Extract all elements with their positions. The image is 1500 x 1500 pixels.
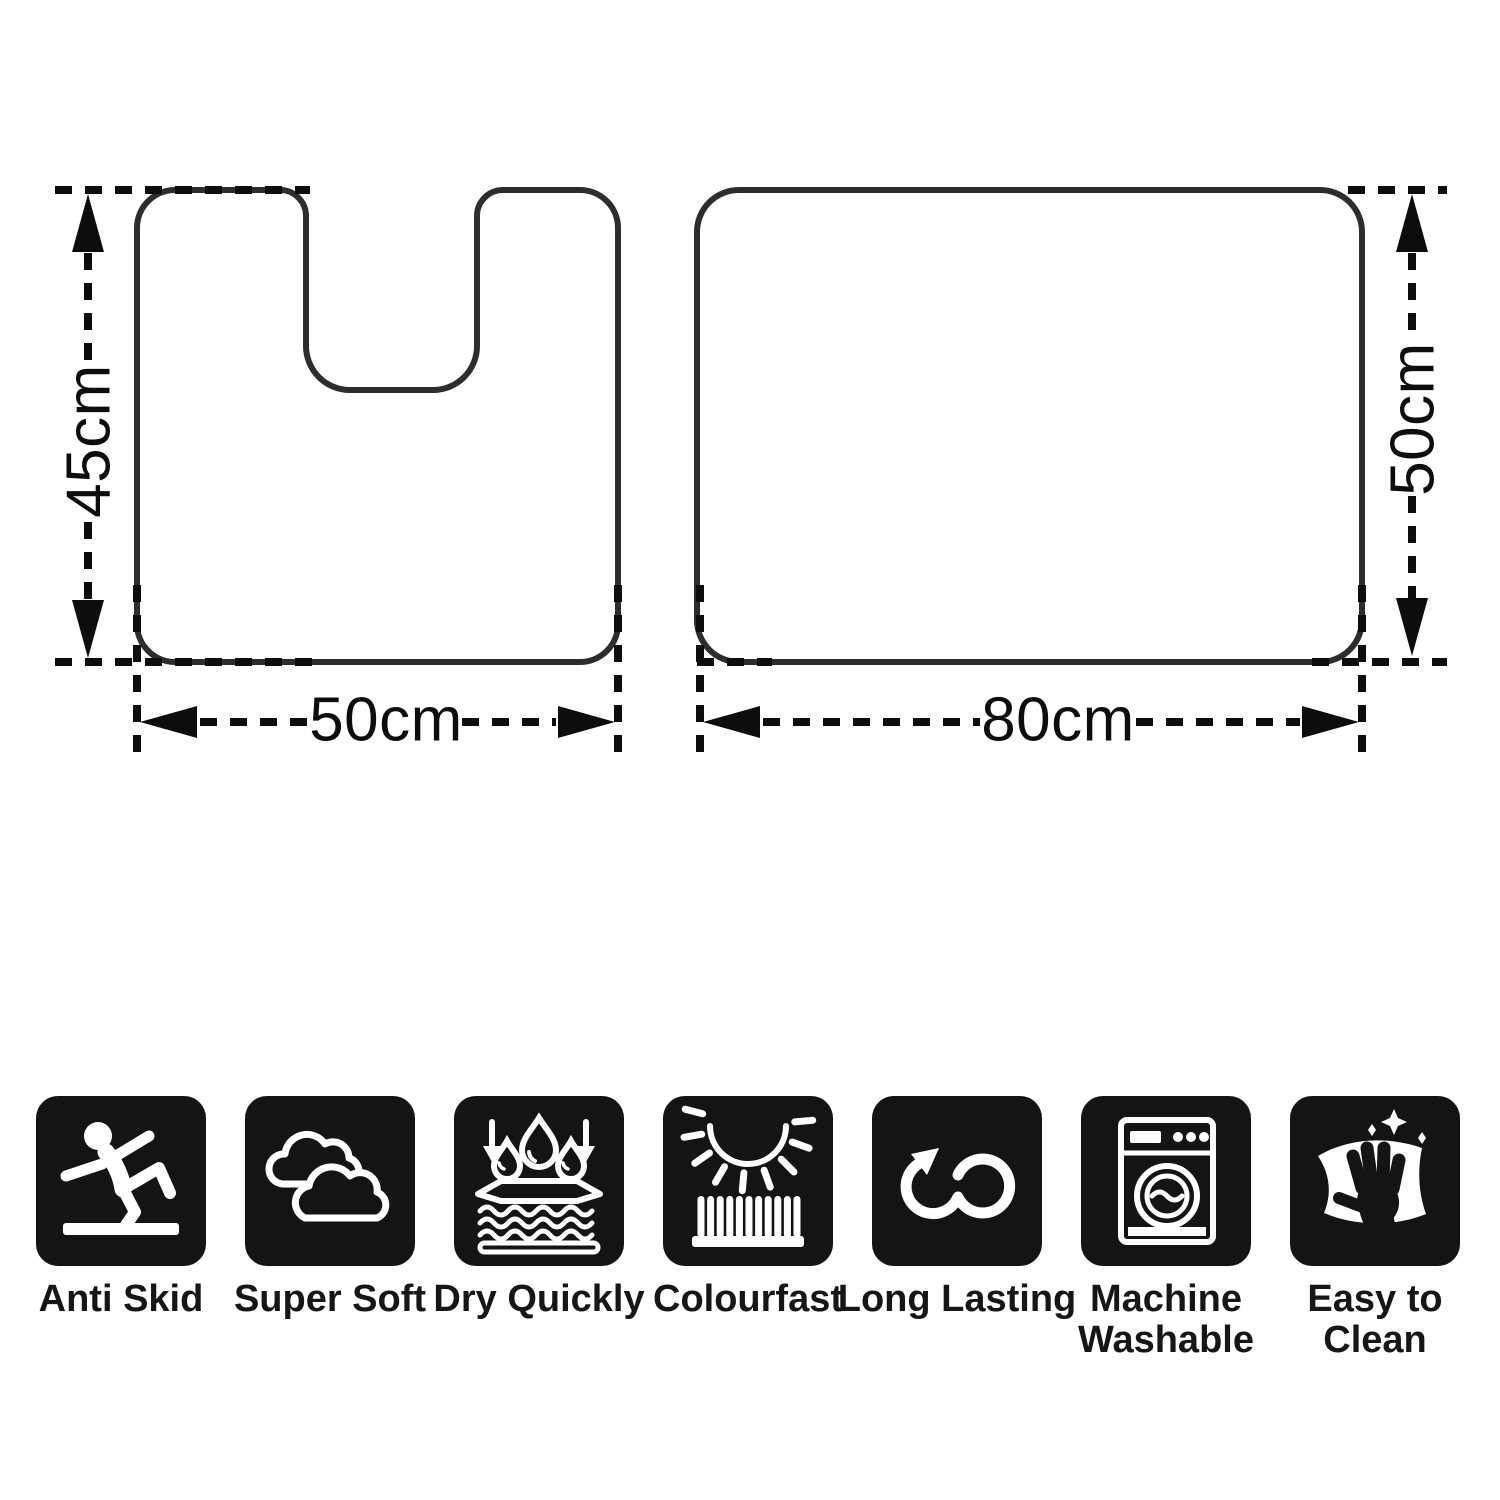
- feature-super-soft: Super Soft: [225, 1096, 435, 1320]
- bath-mat-width-label: 80cm: [981, 685, 1135, 756]
- arrow-up: [1396, 194, 1428, 252]
- long-lasting-icon: [872, 1096, 1042, 1266]
- feature-colourfast: Colourfast: [643, 1096, 853, 1320]
- product-infographic: 45cm 50cm 50cm 80cm Anti Skid: [0, 0, 1500, 1500]
- colourfast-icon: [663, 1096, 833, 1266]
- dry-quickly-icon: [454, 1096, 624, 1266]
- pedestal-mat-width-label: 50cm: [309, 685, 463, 756]
- sun-rays: [684, 1109, 813, 1191]
- bath-mat-height-label: 50cm: [1378, 342, 1449, 496]
- feature-label: Easy to Clean: [1307, 1279, 1442, 1361]
- feature-anti-skid: Anti Skid: [16, 1096, 226, 1320]
- feature-label: Super Soft: [234, 1279, 426, 1320]
- pedestal-mat-outline: [137, 190, 618, 662]
- arrow-right: [558, 706, 615, 738]
- machine-washable-icon: [1081, 1096, 1251, 1266]
- arrow-down: [1396, 598, 1428, 656]
- anti-skid-icon: [36, 1096, 206, 1266]
- arrow-left: [140, 706, 197, 738]
- feature-easy-to-clean: Easy to Clean: [1270, 1096, 1480, 1361]
- dimension-diagram: [0, 0, 1500, 830]
- feature-label: Long Lasting: [838, 1279, 1077, 1320]
- arrow-left: [703, 706, 760, 738]
- pedestal-mat-height-label: 45cm: [54, 364, 125, 518]
- feature-long-lasting: Long Lasting: [852, 1096, 1062, 1320]
- arrow-up: [72, 194, 104, 252]
- feature-label: Machine Washable: [1078, 1279, 1254, 1361]
- feature-dry-quickly: Dry Quickly: [434, 1096, 644, 1320]
- feature-label: Colourfast: [653, 1279, 843, 1320]
- sparkles: [1368, 1109, 1426, 1144]
- bath-mat-outline: [697, 190, 1362, 662]
- arrow-right: [1302, 706, 1359, 738]
- feature-label: Dry Quickly: [433, 1279, 644, 1320]
- arrow-down: [72, 600, 104, 658]
- super-soft-icon: [245, 1096, 415, 1266]
- feature-machine-washable: Machine Washable: [1061, 1096, 1271, 1361]
- carpet-pile: [692, 1196, 804, 1247]
- easy-to-clean-icon: [1290, 1096, 1460, 1266]
- feature-label: Anti Skid: [39, 1279, 204, 1320]
